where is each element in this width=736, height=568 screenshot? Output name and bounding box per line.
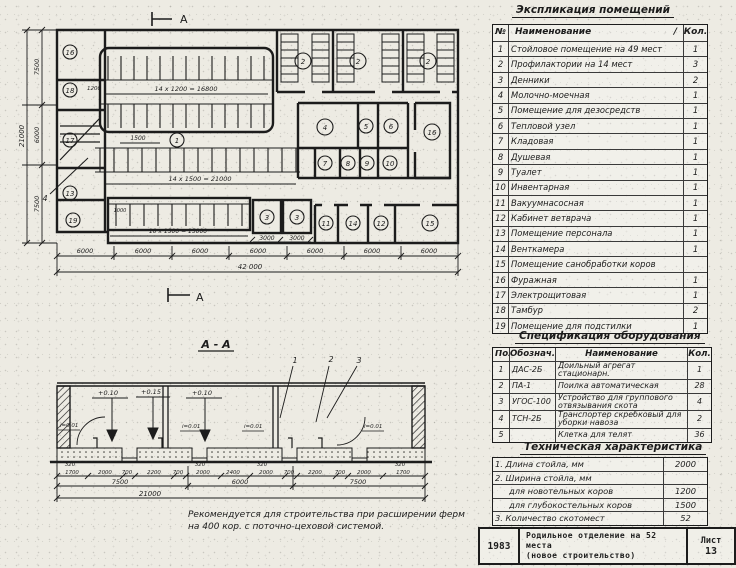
dim-section-total: 21000 [139, 490, 162, 498]
dim-r1-4: 2200 [147, 470, 161, 476]
room-label-4: 4 [323, 124, 327, 132]
explication-header-row: № Наименование / Кол. [493, 25, 707, 41]
tech-label: 3. Количество скотомест [493, 514, 663, 523]
room-label-11: 11 [322, 220, 331, 228]
room-label-7: 7 [323, 160, 328, 168]
dim-stall-low: 10 x 1500 = 15000 [149, 228, 207, 235]
spec-title: Спецификация оборудования [515, 330, 705, 344]
dim-side-3: 7500 [33, 196, 41, 213]
room-num-cell: 17 [493, 291, 508, 300]
explication-row: 15 Помещение санобработки коров [493, 256, 707, 271]
room-label-9: 9 [365, 160, 370, 168]
dim-bay-5: 6000 [307, 247, 324, 255]
eq-mark-cell: УГОС-100 [509, 394, 555, 411]
room-qty-cell: 1 [683, 42, 707, 56]
room-name-cell: Кладовая [508, 134, 683, 148]
explication-row: 5 Помещение для дезосредств 1 [493, 103, 707, 118]
dim-320-3: 320 [257, 462, 268, 468]
spec-header-row: Поз. Обознач. Наименование Кол. [493, 348, 711, 361]
dim-r1-9: 700 [284, 470, 295, 476]
eq-pos-cell: 3 [493, 398, 509, 406]
room-num-cell: 5 [493, 106, 508, 115]
explication-row: 18 Тамбур 2 [493, 303, 707, 318]
col-qty-header: Кол. [683, 25, 707, 41]
recommendation-note: Рекомендуется для строительства при расш… [188, 509, 508, 533]
room-num-cell: 3 [493, 76, 508, 85]
dim-r1-1: 1700 [65, 470, 79, 476]
room-num-cell: 12 [493, 214, 508, 223]
room-qty-cell: 1 [683, 211, 707, 225]
dim-total-length: 42 000 [238, 263, 263, 271]
room-name-cell: Тамбур [508, 304, 683, 318]
room-name-cell: Стойловое помещение на 49 мест [508, 42, 683, 56]
tech-row-2b: для глубокостельных коров 1500 [493, 498, 707, 512]
note-line-2: на 400 кор. с поточно-цеховой системой. [188, 521, 508, 533]
room-label-8: 8 [346, 160, 351, 168]
tech-value: 1200 [663, 485, 707, 498]
dim-stall-top: 14 x 1200 = 16800 [154, 85, 217, 93]
col-name-header: Наименование / [508, 25, 683, 41]
tech-value: 52 [663, 512, 707, 525]
explication-row: 7 Кладовая 1 [493, 133, 707, 148]
slope-label-1: i=0.01 [60, 423, 78, 429]
room-num-cell: 8 [493, 153, 508, 162]
explication-row: 2 Профилактории на 14 мест 3 [493, 56, 707, 71]
room-label-18: 18 [66, 87, 75, 95]
dim-bay-6: 6000 [364, 247, 381, 255]
room-qty-cell: 1 [683, 242, 707, 256]
slope-label-4: i=0.01 [364, 424, 382, 430]
tech-label: 2. Ширина стойла, мм [493, 474, 663, 483]
callout-2: 2 [328, 355, 333, 364]
callout-1: 1 [292, 356, 297, 365]
eq-qty-cell: 28 [687, 380, 711, 393]
room-num-cell: 10 [493, 183, 508, 192]
room-num-cell: 16 [493, 276, 508, 285]
room-label-2c: 2 [426, 58, 431, 66]
explication-row: 4 Молочно-моечная 1 [493, 87, 707, 102]
room-qty-cell: 1 [683, 134, 707, 148]
floor-plan: 4 А А 16 18 17 13 19 1 2 2 2 3 3 4 5 6 1… [0, 0, 500, 330]
room-label-13: 13 [66, 190, 75, 198]
room-name-cell: Электрощитовая [508, 288, 683, 302]
callout-3: 3 [356, 356, 361, 365]
dim-3000a: 3000 [259, 235, 274, 242]
elevation-marks [92, 397, 222, 441]
tech-row-1: 1. Длина стойла, мм 2000 [493, 458, 707, 471]
room-label-16b: 16 [428, 129, 437, 137]
tech-label: для глубокостельных коров [493, 501, 663, 510]
dim-1200: 1200 [87, 86, 101, 92]
explication-row: 17 Электрощитовая 1 [493, 287, 707, 302]
room-label-12: 12 [377, 220, 386, 228]
room-label-3a: 3 [265, 214, 269, 222]
explication-row: 1 Стойловое помещение на 49 мест 1 [493, 41, 707, 56]
room-label-17: 17 [66, 137, 75, 145]
explication-row: 12 Кабинет ветврача 1 [493, 210, 707, 225]
eq-pos-cell: 1 [493, 366, 509, 374]
room-num-cell: 1 [493, 45, 508, 54]
dim-stall-mid: 14 x 1500 = 21000 [168, 175, 231, 183]
room-label-14: 14 [349, 220, 358, 228]
room-num-cell: 15 [493, 260, 508, 269]
dim-320-1: 320 [65, 462, 76, 468]
room-name-cell: Туалет [508, 165, 683, 179]
explication-row: 6 Тепловой узел 1 [493, 118, 707, 133]
room-qty-cell: 1 [683, 119, 707, 133]
section-view: А - А +0.10 +0.15 +0.10 i=0.01 i=0.01 [0, 330, 500, 530]
explication-row: 10 Инвентарная 1 [493, 180, 707, 195]
section-marker-top-label: А [180, 13, 188, 26]
room-label-2b: 2 [356, 58, 361, 66]
tech-label: 1. Длина стойла, мм [493, 460, 663, 469]
tech-row-2: 2. Ширина стойла, мм [493, 471, 707, 485]
room-qty-cell: 1 [683, 165, 707, 179]
room-label-16a: 16 [66, 49, 75, 57]
col-name-label: Наименование [515, 28, 591, 37]
room-qty-cell: 1 [683, 150, 707, 164]
room-qty-cell: 1 [683, 88, 707, 102]
dim-bay-2: 6000 [135, 247, 152, 255]
eq-mark-cell [509, 429, 555, 442]
room-name-cell: Фуражная [508, 273, 683, 287]
room-name-cell: Профилактории на 14 мест [508, 57, 683, 71]
room-name-cell: Кабинет ветврача [508, 211, 683, 225]
title-block-object: Родильное отделение на 52 места (новое с… [518, 529, 686, 563]
room-qty-cell: 1 [683, 288, 707, 302]
eq-mark-cell: ПА-1 [509, 380, 555, 393]
room-num-cell: 7 [493, 137, 508, 146]
eq-pos-cell: 4 [493, 415, 509, 423]
dim-r2-2: 6000 [232, 478, 249, 486]
explication-table: № Наименование / Кол. 1 Стойловое помеще… [492, 24, 708, 334]
sheet-number: 13 [705, 546, 717, 557]
room-name-cell: Денники [508, 73, 683, 87]
dim-total-width: 21000 [18, 124, 26, 147]
room-qty-cell: 1 [683, 104, 707, 118]
eq-name-cell: Доильный агрегат стационарн. [555, 362, 687, 379]
object-line-1: Родильное отделение на 52 места [526, 531, 686, 551]
dim-320-4: 320 [395, 462, 406, 468]
room-qty-cell: 1 [683, 181, 707, 195]
dim-r1-13: 1700 [396, 470, 410, 476]
room-name-cell: Вакуумнасосная [508, 196, 683, 210]
explication-row: 13 Помещение персонала 1 [493, 226, 707, 241]
room-label-10: 10 [386, 160, 395, 168]
room-label-3b: 3 [295, 214, 299, 222]
tech-value [663, 472, 707, 485]
dim-3000b: 3000 [289, 235, 304, 242]
room-num-cell: 6 [493, 122, 508, 131]
section-dimension-labels: 320 320 320 320 1700 2000 700 2200 700 2… [65, 462, 411, 498]
elev-label-3: +0.10 [192, 389, 212, 397]
slope-labels: i=0.01 i=0.01 i=0.01 i=0.01 [60, 423, 382, 430]
room-label-6: 6 [389, 123, 394, 131]
title-block-year: 1983 [480, 529, 518, 563]
dim-r1-7: 2400 [226, 470, 240, 476]
room-name-cell: Инвентарная [508, 181, 683, 195]
room-qty-cell: 1 [683, 273, 707, 287]
explication-row: 8 Душевая 1 [493, 149, 707, 164]
room-name-cell: Душевая [508, 150, 683, 164]
room-num-cell: 2 [493, 60, 508, 69]
spec-row: 5 Клетка для телят 36 [493, 428, 711, 442]
callouts: 1 2 3 [280, 355, 362, 422]
dim-r1-11: 700 [335, 470, 346, 476]
dim-side-1: 7500 [33, 59, 41, 76]
room-name-cell: Помещение санобработки коров [508, 257, 683, 271]
eq-mark-cell: ДАС-2Б [509, 362, 555, 379]
room-qty-cell: 1 [683, 196, 707, 210]
room-qty-cell: 2 [683, 73, 707, 87]
dim-bay-4: 6000 [250, 247, 267, 255]
col-eqname-header: Наименование [555, 348, 687, 361]
dim-side-2: 6000 [33, 127, 41, 144]
room-name-cell: Венткамера [508, 242, 683, 256]
room-label-2a: 2 [301, 58, 306, 66]
slope-label-2: i=0.01 [182, 424, 200, 430]
tech-label: для новотельных коров [493, 487, 663, 496]
room-num-cell: 11 [493, 199, 508, 208]
tech-row-3: 3. Количество скотомест 52 [493, 511, 707, 525]
spec-row: 3 УГОС-100 Устройство для группового отв… [493, 393, 711, 411]
dim-r1-10: 2200 [308, 470, 322, 476]
room-num-cell: 9 [493, 168, 508, 177]
dim-1500: 1500 [130, 135, 145, 142]
room-name-cell: Помещение персонала [508, 227, 683, 241]
dim-320-2: 320 [195, 462, 206, 468]
room-num-cell: 14 [493, 245, 508, 254]
room-qty-cell: 2 [683, 304, 707, 318]
col-pos-header: Поз. [493, 350, 509, 359]
dim-r1-12: 2000 [357, 470, 371, 476]
eq-pos-cell: 2 [493, 382, 509, 390]
room-qty-cell: 1 [683, 227, 707, 241]
eq-qty-cell: 36 [687, 429, 711, 442]
sheet-label: Лист [701, 536, 721, 546]
title-block: 1983 Родильное отделение на 52 места (но… [478, 527, 736, 565]
spec-row: 4 ТСН-2Б Транспортер скребковый для убор… [493, 410, 711, 428]
dim-r2-1: 7500 [112, 478, 129, 486]
col-name-mark: / [674, 28, 677, 37]
elev-label-2: +0.15 [141, 388, 161, 396]
section-title: А - А [200, 338, 230, 351]
tech-value: 1500 [663, 499, 707, 512]
object-line-2: (новое строительство) [526, 551, 636, 561]
dim-bay-3: 6000 [192, 247, 209, 255]
dim-bay-1: 6000 [77, 247, 94, 255]
dim-r1-2: 2000 [98, 470, 112, 476]
room-label-15: 15 [426, 220, 435, 228]
elevation-labels: +0.10 +0.15 +0.10 [98, 388, 212, 397]
explication-row: 14 Венткамера 1 [493, 241, 707, 256]
leader-label: 4 [42, 194, 47, 203]
col-mark-header: Обознач. [509, 348, 555, 361]
note-line-1: Рекомендуется для строительства при расш… [188, 509, 508, 521]
eq-mark-cell: ТСН-2Б [509, 411, 555, 428]
spec-table: Поз. Обознач. Наименование Кол. 1 ДАС-2Б… [492, 347, 712, 443]
dim-r1-6: 2000 [196, 470, 210, 476]
dim-1000: 1000 [114, 208, 127, 214]
room-qty-cell [683, 257, 707, 271]
eq-qty-cell: 2 [687, 411, 711, 428]
explication-title: Экспликация помещений [512, 4, 674, 18]
room-label-1: 1 [175, 137, 179, 145]
room-name-cell: Молочно-моечная [508, 88, 683, 102]
eq-name-cell: Устройство для группового отвязывания ск… [555, 394, 687, 411]
room-num-cell: 13 [493, 229, 508, 238]
eq-qty-cell: 1 [687, 362, 711, 379]
room-name-cell: Тепловой узел [508, 119, 683, 133]
room-label-5: 5 [364, 123, 369, 131]
tech-value: 2000 [663, 458, 707, 471]
elev-label-1: +0.10 [98, 389, 118, 397]
room-name-cell: Помещение для дезосредств [508, 104, 683, 118]
room-num-cell: 18 [493, 306, 508, 315]
dim-r2-3: 7500 [350, 478, 367, 486]
eq-name-cell: Клетка для телят [555, 429, 687, 442]
room-num-cell: 4 [493, 91, 508, 100]
explication-row: 3 Денники 2 [493, 72, 707, 87]
explication-row: 11 Вакуумнасосная 1 [493, 195, 707, 210]
explication-row: 16 Фуражная 1 [493, 272, 707, 287]
room-qty-cell: 3 [683, 57, 707, 71]
eq-name-cell: Поилка автоматическая [555, 380, 687, 393]
title-block-sheet: Лист 13 [686, 529, 734, 563]
tech-title: Техническая характеристика [520, 441, 706, 455]
spec-row: 2 ПА-1 Поилка автоматическая 28 [493, 379, 711, 393]
dim-r1-3: 700 [122, 470, 133, 476]
col-num-header: № [493, 28, 508, 37]
dim-r1-8: 2000 [259, 470, 273, 476]
col-eqqty-header: Кол. [687, 348, 711, 361]
room-label-19: 19 [69, 217, 78, 225]
room-num-cell: 19 [493, 322, 508, 331]
dim-bay-7: 6000 [421, 247, 438, 255]
section-marker-bottom-label: А [196, 291, 204, 304]
eq-qty-cell: 4 [687, 394, 711, 411]
explication-row: 9 Туалет 1 [493, 164, 707, 179]
eq-name-cell: Транспортер скребковый для уборки навоза [555, 411, 687, 428]
slope-label-3: i=0.01 [244, 424, 262, 430]
tech-table: 1. Длина стойла, мм 2000 2. Ширина стойл… [492, 457, 708, 526]
eq-pos-cell: 5 [493, 431, 509, 439]
tech-row-2a: для новотельных коров 1200 [493, 484, 707, 498]
spec-row: 1 ДАС-2Б Доильный агрегат стационарн. 1 [493, 361, 711, 379]
dim-r1-5: 700 [173, 470, 184, 476]
